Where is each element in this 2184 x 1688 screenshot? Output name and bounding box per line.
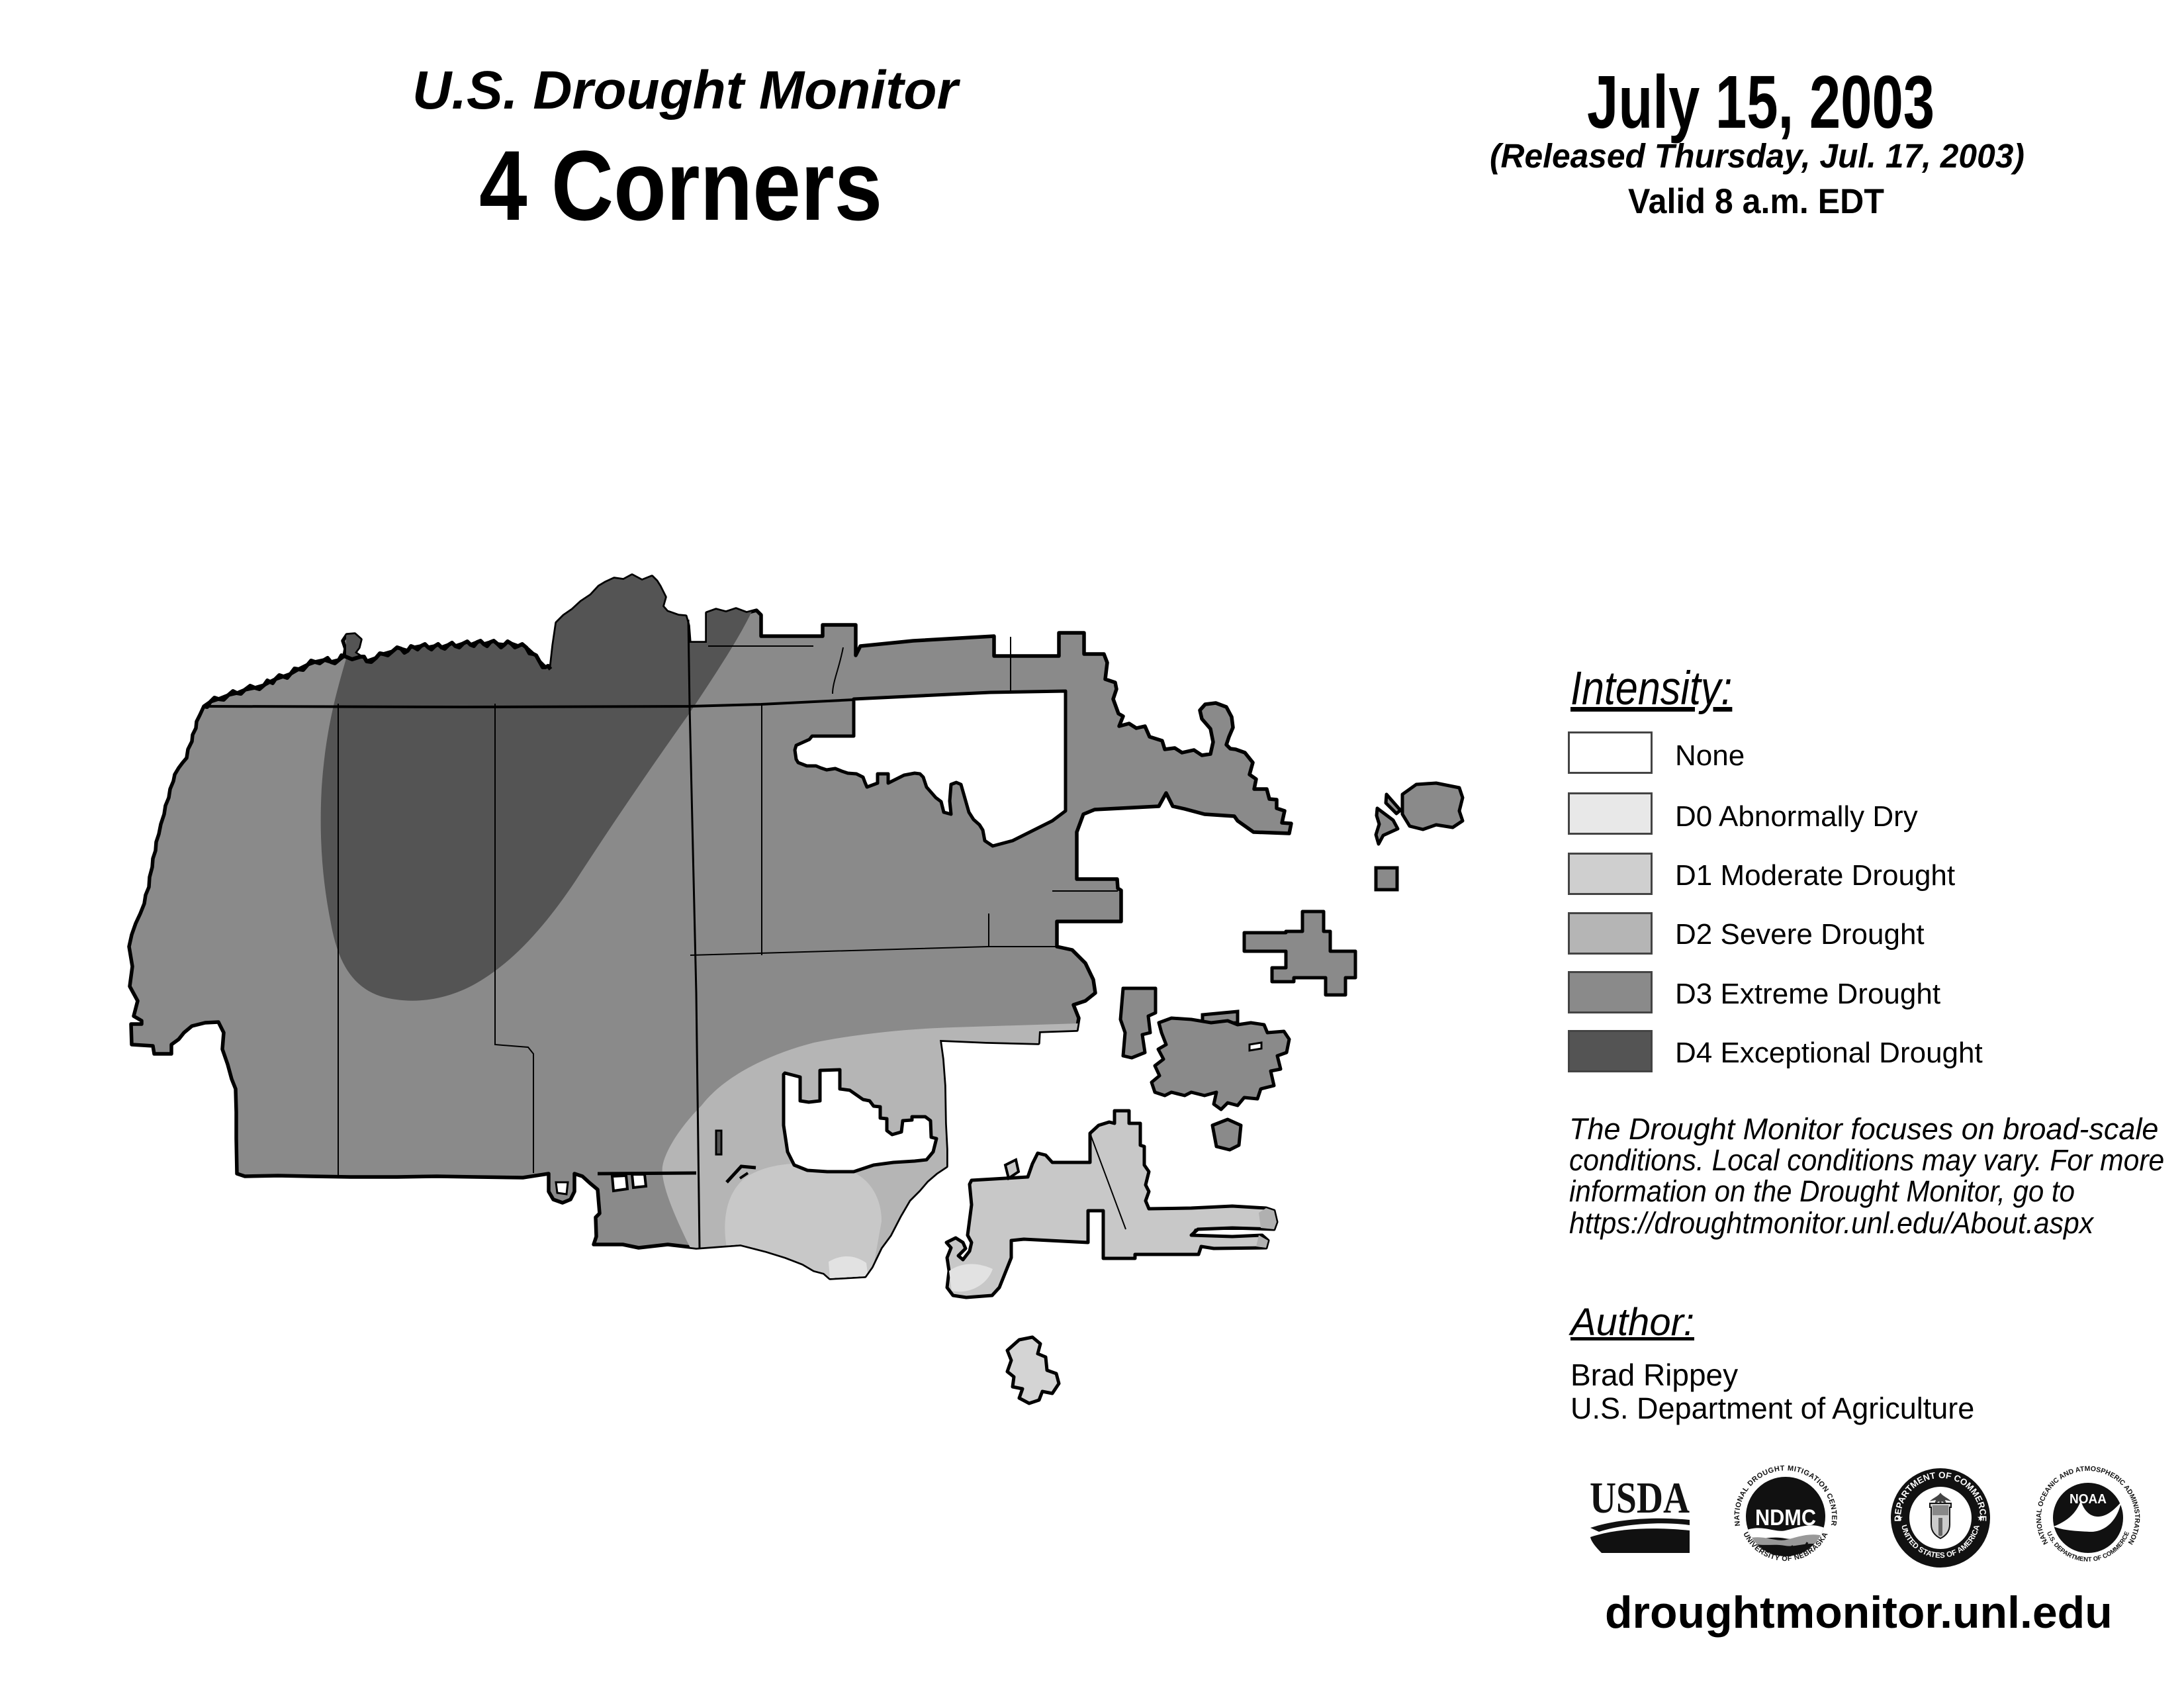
- svg-text:NOAA: NOAA: [2070, 1492, 2107, 1507]
- svg-text:USDA: USDA: [1590, 1480, 1690, 1523]
- svg-text:★: ★: [1977, 1513, 1984, 1523]
- svg-text:NDMC: NDMC: [1755, 1505, 1816, 1530]
- svg-text:★: ★: [1896, 1513, 1903, 1523]
